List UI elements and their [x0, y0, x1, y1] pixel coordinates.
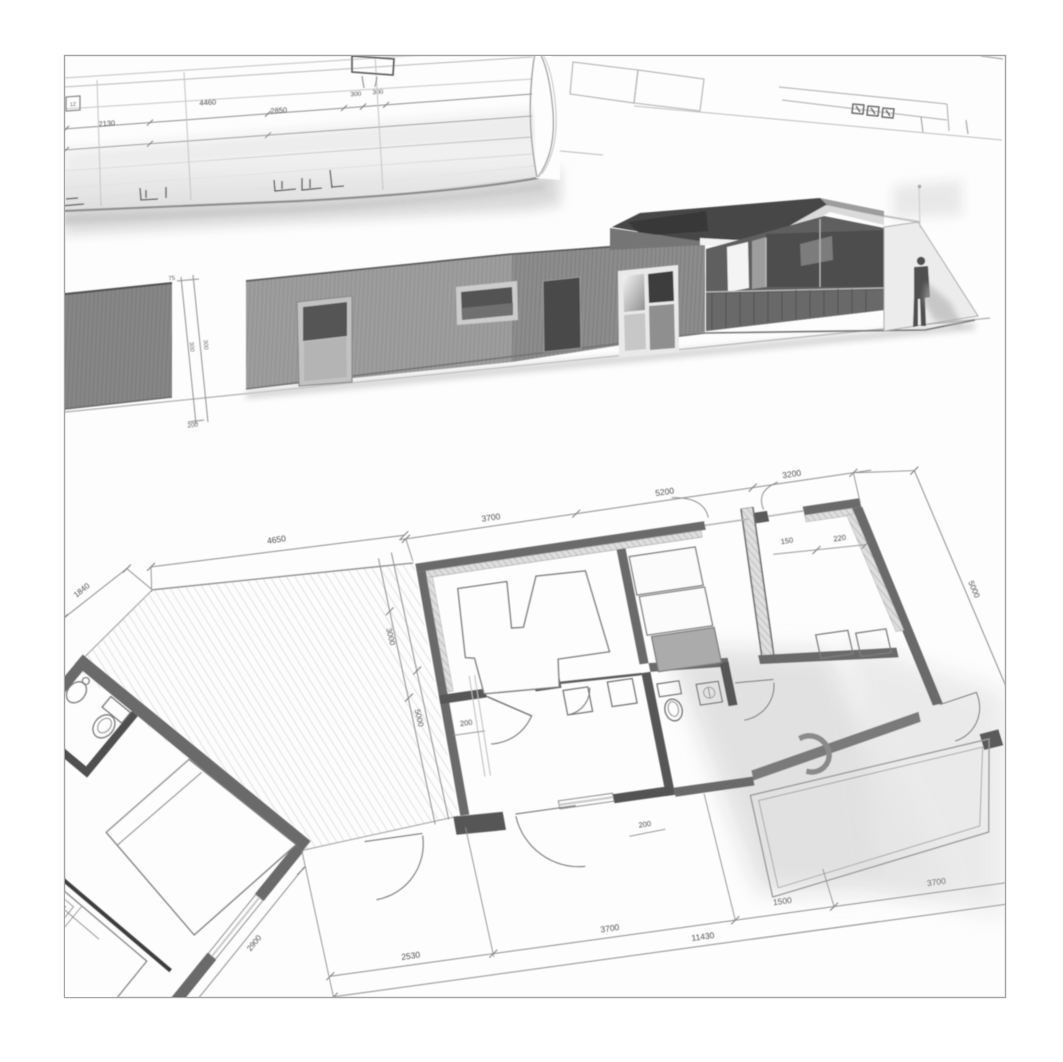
svg-text:200: 200: [459, 718, 473, 729]
svg-text:200: 200: [187, 421, 199, 429]
svg-text:220: 220: [833, 533, 847, 544]
svg-text:12: 12: [70, 102, 77, 108]
svg-text:300: 300: [350, 91, 362, 99]
svg-text:2130: 2130: [98, 118, 115, 128]
svg-text:300: 300: [201, 340, 208, 351]
svg-text:300: 300: [187, 342, 194, 353]
svg-text:150: 150: [780, 535, 794, 546]
svg-text:4460: 4460: [199, 97, 216, 107]
svg-text:2850: 2850: [270, 105, 287, 115]
svg-text:300: 300: [372, 89, 384, 97]
svg-text:75: 75: [168, 276, 176, 283]
svg-text:200: 200: [638, 819, 652, 830]
